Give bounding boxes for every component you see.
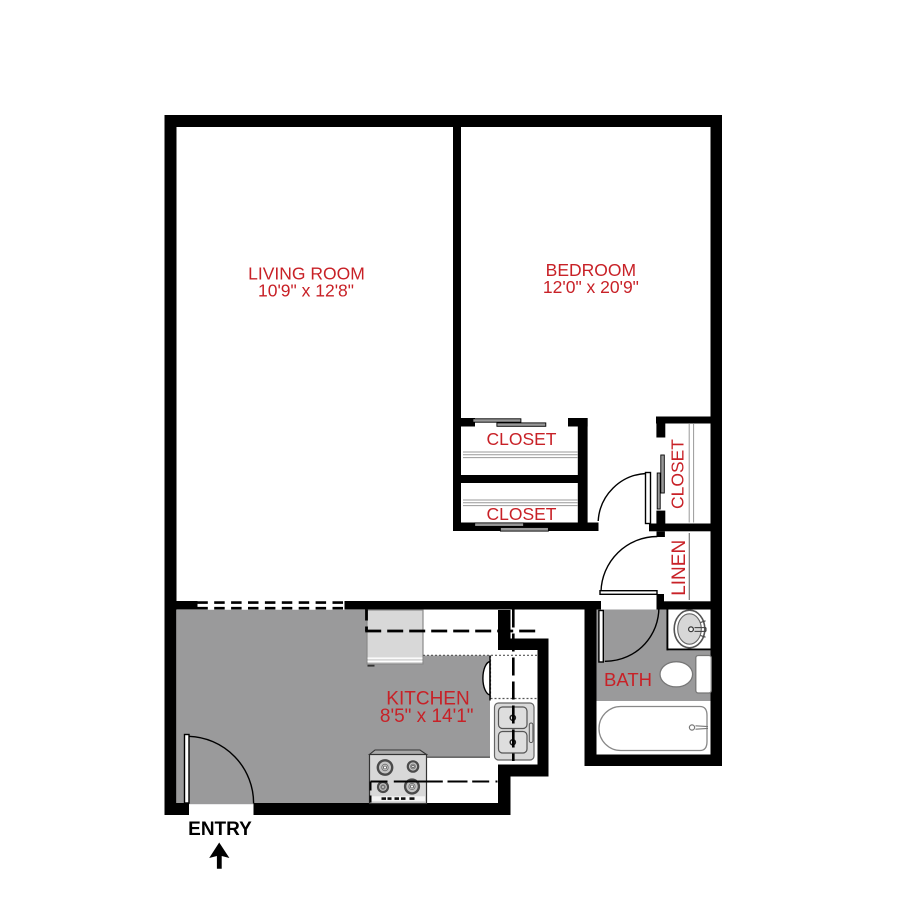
svg-text:10'9" x 12'8": 10'9" x 12'8" [258,281,354,301]
svg-text:BATH: BATH [604,669,652,690]
svg-text:ENTRY: ENTRY [188,819,252,840]
svg-text:8'5" x 14'1": 8'5" x 14'1" [380,706,474,727]
svg-text:LINEN: LINEN [669,540,690,596]
svg-text:CLOSET: CLOSET [486,429,556,449]
svg-text:CLOSET: CLOSET [486,504,556,524]
svg-text:12'0" x 20'9": 12'0" x 20'9" [543,277,639,297]
svg-text:CLOSET: CLOSET [668,439,688,509]
